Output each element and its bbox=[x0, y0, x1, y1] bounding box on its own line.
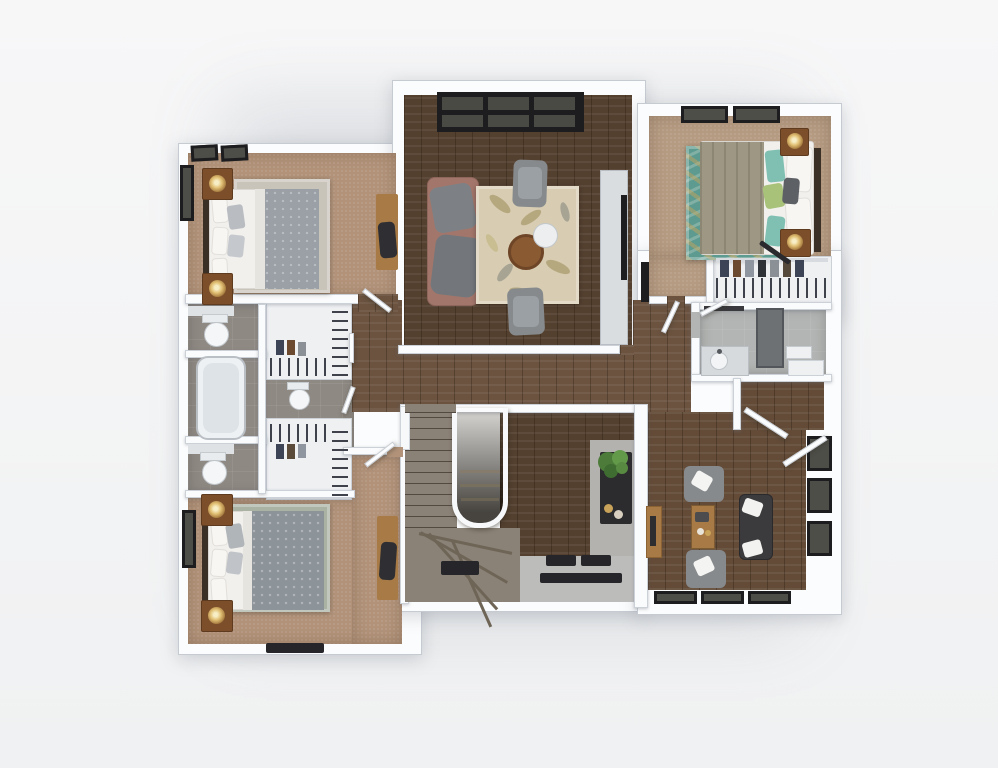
wall-bedroom3-bottom-a bbox=[649, 296, 669, 304]
patch-stairs-top bbox=[405, 404, 456, 413]
pillow-bedroom2-b bbox=[210, 548, 228, 577]
closet3-clothes-3 bbox=[745, 260, 754, 277]
skylight-living bbox=[437, 92, 584, 132]
floor-loft bbox=[648, 412, 806, 590]
fixture-bath2 bbox=[786, 346, 812, 359]
duvet-bedroom2 bbox=[250, 511, 324, 610]
closetL-top-rod-h bbox=[270, 358, 332, 376]
tv-living bbox=[621, 195, 627, 280]
lamp-bedroom3-top bbox=[787, 133, 803, 149]
table-loft-dot-1 bbox=[697, 528, 704, 535]
pillow-bedroom1-b bbox=[211, 226, 229, 255]
closetL-bottom-clothes-3 bbox=[298, 444, 306, 458]
basin-bath2 bbox=[710, 352, 728, 370]
stair-treads bbox=[405, 412, 457, 528]
throw-blanket-bottom bbox=[430, 233, 483, 298]
closetL-bottom-rod-v bbox=[332, 424, 348, 496]
table-loft-tray bbox=[695, 512, 709, 522]
chair-bedroom2 bbox=[379, 541, 398, 580]
window-bedroom1-a bbox=[191, 144, 219, 161]
duvet-fold-bedroom1 bbox=[255, 189, 265, 289]
chair-bedroom1 bbox=[377, 221, 397, 258]
closet3-clothes-4 bbox=[758, 260, 766, 277]
wall-vestibule-left bbox=[733, 378, 741, 430]
table-loft-dot-2 bbox=[705, 530, 711, 536]
bathtub-inner bbox=[203, 363, 239, 433]
pillow-dark-bedroom3 bbox=[782, 177, 800, 204]
plant-stand-decor-1 bbox=[604, 504, 613, 513]
closet3-clothes-7 bbox=[795, 260, 804, 277]
closet3-clothes-5 bbox=[770, 260, 779, 277]
wall-bath-closet-left bbox=[258, 304, 266, 494]
vent-stairs-d bbox=[540, 573, 622, 583]
plant-leaves-4 bbox=[616, 462, 628, 474]
wall-living-bottom bbox=[398, 345, 620, 354]
closetL-bottom-clothes-1 bbox=[276, 444, 284, 459]
lamp-bedroom3-bottom bbox=[787, 234, 803, 250]
console-loft-item bbox=[650, 516, 656, 546]
floor-plan-canvas bbox=[0, 0, 998, 768]
linen-closet-bath2 bbox=[788, 360, 824, 376]
window-loft-right-3 bbox=[807, 521, 832, 556]
patch-living-hall bbox=[620, 345, 634, 355]
plant-stand-decor-2 bbox=[614, 510, 623, 519]
pillow-accent-bedroom1-a bbox=[226, 204, 245, 230]
window-loft-bottom-3 bbox=[748, 591, 791, 604]
window-loft-bottom-1 bbox=[654, 591, 697, 604]
tv-corridor bbox=[641, 262, 649, 302]
floor-hall-band bbox=[352, 354, 634, 410]
shower-bath2 bbox=[756, 308, 784, 368]
side-table-living bbox=[533, 223, 558, 248]
closetL-top-rod-v bbox=[332, 304, 348, 376]
tap-bath2 bbox=[717, 349, 722, 354]
duvet-bedroom1 bbox=[263, 189, 319, 289]
wall-closet3-left bbox=[706, 256, 714, 304]
window-bedroom3-a bbox=[681, 106, 728, 123]
window-bedroom3-b bbox=[733, 106, 780, 123]
lamp-bedroom2-bottom bbox=[208, 607, 225, 624]
vent-stairs-c bbox=[581, 555, 611, 566]
vent-stairs-a bbox=[441, 561, 479, 575]
stair-railing bbox=[452, 408, 508, 528]
closetL-bottom-rod-h bbox=[270, 424, 332, 442]
closetL-top-clothes-1 bbox=[276, 340, 284, 355]
window-loft-bottom-2 bbox=[701, 591, 744, 604]
toilet3-bowl bbox=[289, 389, 310, 410]
pillow-accent-bedroom1-b bbox=[227, 234, 245, 258]
toilet1-bowl bbox=[204, 322, 229, 347]
closetL-top-clothes-2 bbox=[287, 340, 295, 355]
vent-stairs-b bbox=[546, 555, 576, 566]
armchair-living-bottom-cushion bbox=[513, 296, 539, 327]
lamp-bedroom1-bottom bbox=[209, 280, 226, 297]
closet3-hanging-rod bbox=[716, 278, 828, 298]
duvet-fold-bedroom2 bbox=[243, 511, 252, 610]
floor-bedroom3-lower bbox=[649, 255, 713, 302]
pillow-accent-bedroom2-b bbox=[226, 551, 244, 575]
window-bedroom1-b bbox=[221, 144, 249, 161]
window-bedroom2-left bbox=[182, 510, 196, 568]
lamp-bedroom1-top bbox=[209, 175, 226, 192]
duvet-bedroom3 bbox=[700, 142, 764, 254]
lamp-bedroom2-top bbox=[208, 501, 225, 518]
closetL-bottom-clothes-2 bbox=[287, 444, 295, 459]
armchair-living-top-cushion bbox=[518, 167, 542, 199]
throw-blanket-top bbox=[428, 182, 477, 235]
patch-door-bath2 bbox=[691, 312, 700, 338]
closet3-clothes-2 bbox=[733, 260, 741, 277]
vent-bedroom2 bbox=[266, 643, 324, 653]
floor-vestibule bbox=[740, 380, 824, 430]
door-hall-strip bbox=[349, 333, 354, 363]
window-loft-right-2 bbox=[807, 478, 832, 513]
window-bedroom1-left bbox=[180, 165, 194, 221]
closetL-top-clothes-3 bbox=[298, 342, 306, 356]
toilet2-bowl bbox=[202, 460, 227, 485]
headboard-bedroom3 bbox=[814, 148, 821, 252]
closet3-clothes-1 bbox=[720, 260, 729, 277]
